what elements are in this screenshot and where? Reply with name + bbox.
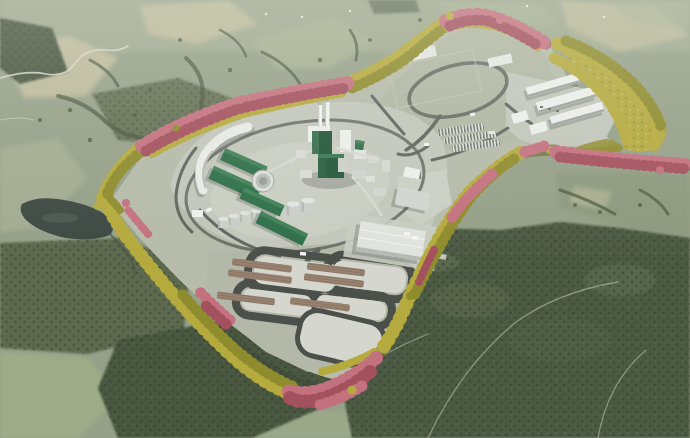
atmospheric-haze: [0, 0, 690, 438]
screenshot-root: [0, 0, 690, 438]
aerial-render: [0, 0, 690, 438]
